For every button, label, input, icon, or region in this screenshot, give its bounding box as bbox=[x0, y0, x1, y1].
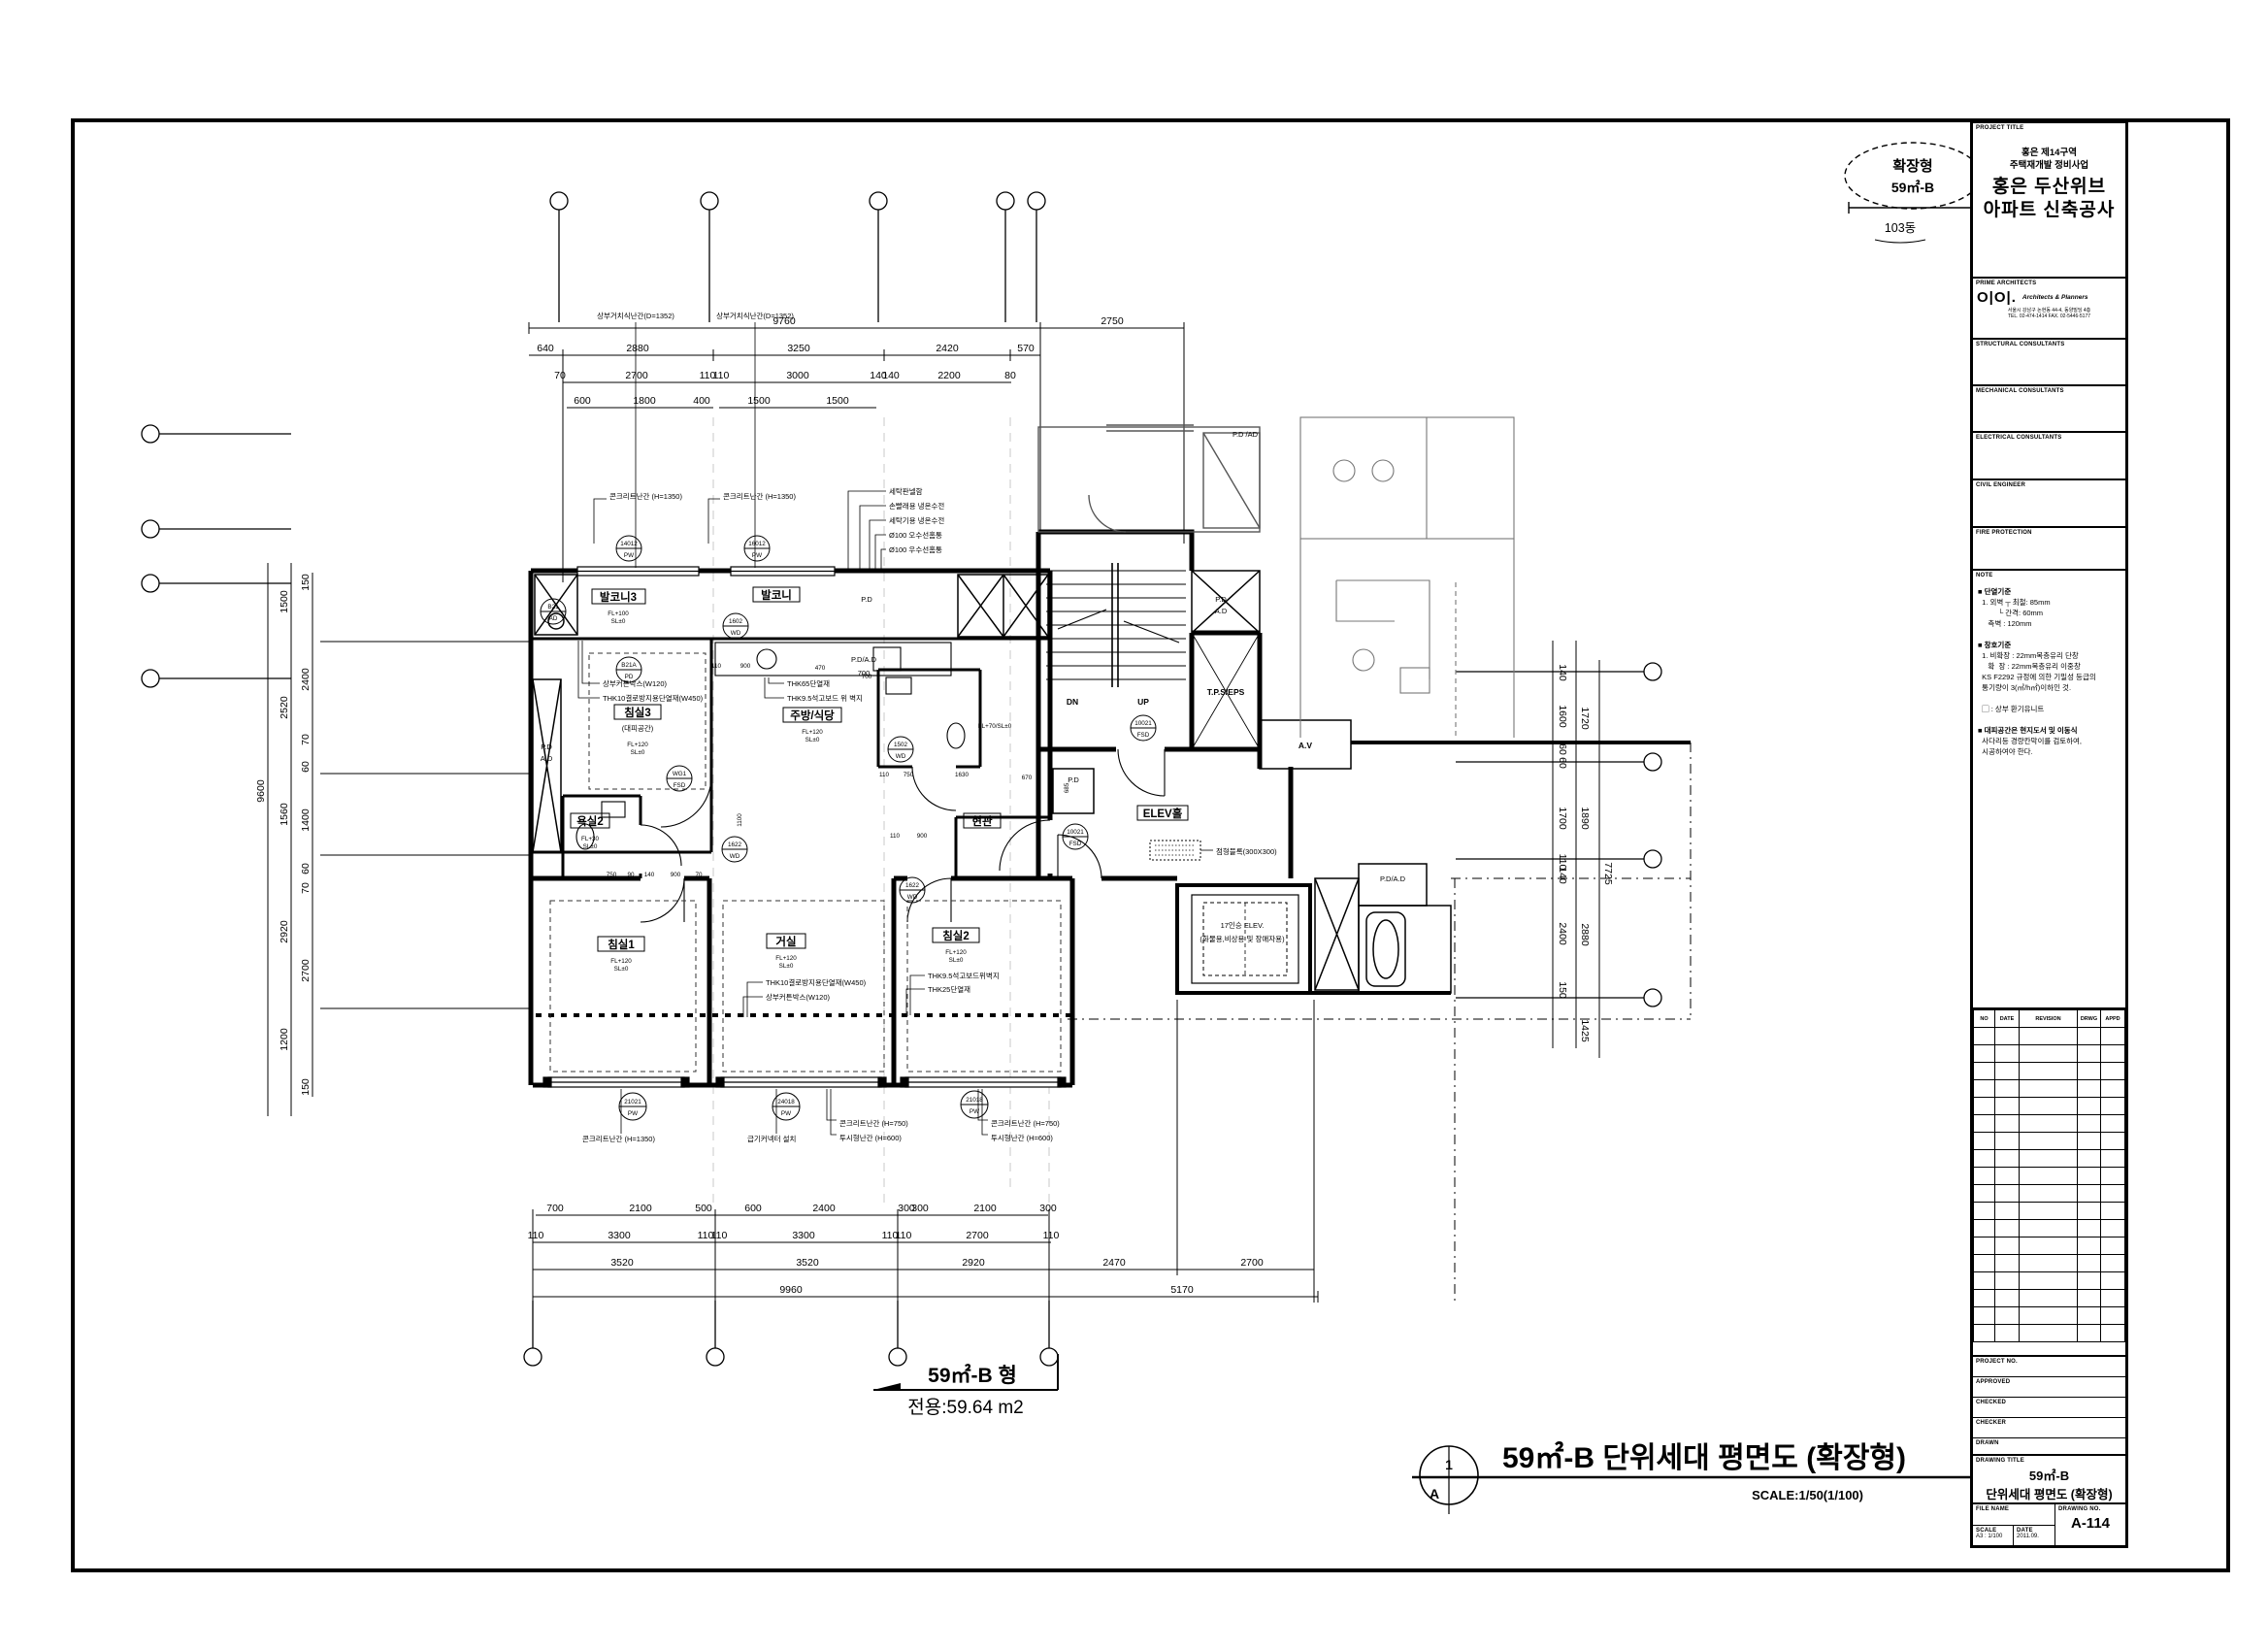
revision-cell bbox=[1974, 1290, 1995, 1307]
rev-col-no: NO bbox=[1974, 1010, 1995, 1028]
svg-text:콘크리트난간 (H=1350): 콘크리트난간 (H=1350) bbox=[723, 491, 796, 501]
svg-text:70: 70 bbox=[695, 872, 703, 878]
svg-text:90: 90 bbox=[627, 872, 635, 878]
svg-text:세탁판넬함: 세탁판넬함 bbox=[889, 486, 923, 496]
structural-label: STRUCTURAL CONSULTANTS bbox=[1973, 340, 2125, 347]
date-label: DATE bbox=[2014, 1526, 2054, 1534]
svg-text:확장형: 확장형 bbox=[1892, 157, 1932, 175]
svg-text:1400: 1400 bbox=[300, 808, 312, 832]
mechanical-section: MECHANICAL CONSULTANTS bbox=[1973, 386, 2125, 433]
svg-text:1602: 1602 bbox=[729, 618, 743, 625]
revision-cell bbox=[2078, 1028, 2101, 1045]
svg-text:2920: 2920 bbox=[962, 1257, 985, 1269]
revision-cell bbox=[2101, 1220, 2125, 1237]
svg-text:콘크리트난간 (H=1350): 콘크리트난간 (H=1350) bbox=[582, 1134, 655, 1143]
svg-text:DN: DN bbox=[1067, 697, 1078, 707]
revision-cell bbox=[2078, 1290, 2101, 1307]
svg-text:300: 300 bbox=[1039, 1203, 1057, 1214]
project-subtitle-1: 홍은 제14구역 bbox=[1973, 147, 2125, 159]
svg-text:1500: 1500 bbox=[826, 395, 849, 407]
revision-cell bbox=[1974, 1028, 1995, 1045]
svg-text:투시형난간 (H=600): 투시형난간 (H=600) bbox=[839, 1133, 902, 1142]
svg-text:THK9.5석고보드 위 벽지: THK9.5석고보드 위 벽지 bbox=[787, 693, 863, 703]
svg-text:14012: 14012 bbox=[620, 541, 638, 547]
svg-text:2100: 2100 bbox=[629, 1203, 652, 1214]
svg-text:WD: WD bbox=[907, 894, 918, 901]
note-label: NOTE bbox=[1973, 571, 2125, 578]
svg-text:2400: 2400 bbox=[300, 668, 312, 691]
grid-bubbles-left bbox=[142, 425, 291, 687]
revision-cell bbox=[1974, 1115, 1995, 1133]
electrical-section: ELECTRICAL CONSULTANTS bbox=[1973, 433, 2125, 480]
svg-text:1100: 1100 bbox=[737, 813, 743, 827]
detail-number: 1 bbox=[1445, 1457, 1453, 1472]
revision-cell bbox=[2101, 1045, 2125, 1063]
svg-text:2200: 2200 bbox=[937, 370, 961, 381]
project-name-2: 아파트 신축공사 bbox=[1973, 199, 2125, 222]
revision-cell bbox=[2078, 1045, 2101, 1063]
rev-col-date: DATE bbox=[1995, 1010, 2020, 1028]
revision-cell bbox=[2078, 1220, 2101, 1237]
revision-cell bbox=[2020, 1168, 2078, 1185]
svg-text:140: 140 bbox=[1557, 664, 1568, 681]
svg-text:700: 700 bbox=[862, 674, 872, 680]
svg-text:24018: 24018 bbox=[777, 1099, 795, 1105]
drawing-title-line1: 59㎡-B bbox=[1973, 1466, 2125, 1484]
dims-right: 140 1600 60 60 1700 110 140 2400 150 172… bbox=[1557, 664, 1614, 1042]
svg-text:상부커튼박스(W120): 상부커튼박스(W120) bbox=[603, 678, 667, 688]
revision-cell bbox=[2101, 1272, 2125, 1290]
svg-text:2880: 2880 bbox=[626, 343, 649, 354]
revision-cell bbox=[1974, 1325, 1995, 1342]
svg-text:PW: PW bbox=[970, 1108, 979, 1115]
svg-text:SL±0: SL±0 bbox=[949, 957, 964, 964]
note-line: ▢ : 상부 환기유니트 bbox=[1973, 704, 2125, 714]
revision-cell bbox=[2078, 1150, 2101, 1168]
note-line bbox=[1973, 693, 2125, 704]
svg-text:AD: AD bbox=[549, 615, 558, 622]
svg-text:600: 600 bbox=[744, 1203, 762, 1214]
svg-text:7725: 7725 bbox=[1602, 862, 1614, 885]
svg-text:110: 110 bbox=[528, 1230, 544, 1241]
note-line: 확 장 : 22mm복층유리 이중창 bbox=[1973, 661, 2125, 672]
revision-cell bbox=[2020, 1098, 2078, 1115]
svg-text:110: 110 bbox=[896, 1230, 912, 1241]
note-line: ■ 대피공간은 현지도서 및 이동식 bbox=[1973, 725, 2125, 736]
svg-text:WD: WD bbox=[730, 853, 740, 860]
svg-text:470: 470 bbox=[815, 665, 826, 672]
drawing-no-label: DRAWING NO. bbox=[2055, 1504, 2125, 1512]
svg-text:P.D: P.D bbox=[1068, 775, 1079, 784]
revision-cell bbox=[1995, 1272, 2020, 1290]
svg-text:140: 140 bbox=[882, 370, 900, 381]
svg-text:P.D: P.D bbox=[1215, 595, 1227, 604]
footer-title: 1 A 59㎡-B 단위세대 평면도 (확장형) SCALE:1/50(1/10… bbox=[1412, 1441, 1978, 1514]
svg-text:FSD: FSD bbox=[1069, 841, 1082, 847]
revision-cell bbox=[1974, 1150, 1995, 1168]
revision-cell bbox=[1974, 1098, 1995, 1115]
svg-text:콘크리트난간 (H=750): 콘크리트난간 (H=750) bbox=[839, 1118, 908, 1128]
svg-text:2700: 2700 bbox=[1240, 1257, 1264, 1269]
upper-core bbox=[1038, 425, 1260, 532]
revision-cell bbox=[2101, 1307, 2125, 1325]
svg-text:전용:59.64 m2: 전용:59.64 m2 bbox=[907, 1397, 1023, 1418]
title-block: PROJECT TITLE 홍은 제14구역 주택재개발 정비사업 홍은 두산위… bbox=[1970, 120, 2128, 1548]
svg-text:B21: B21 bbox=[547, 604, 559, 610]
revision-section: NO DATE REVISION DRWG APPD bbox=[1973, 1009, 2125, 1357]
svg-text:3520: 3520 bbox=[796, 1257, 819, 1269]
svg-text:60: 60 bbox=[1557, 743, 1568, 755]
svg-text:FL+100: FL+100 bbox=[608, 610, 629, 617]
revision-cell bbox=[1974, 1272, 1995, 1290]
revision-cell bbox=[2020, 1115, 2078, 1133]
dims-bottom: 700 2100 500 600 2400 300 300 2100 300 1… bbox=[528, 1203, 1264, 1296]
svg-text:Ø100 오수선홈통: Ø100 오수선홈통 bbox=[889, 530, 942, 540]
dims-left: 9600 1500 2520 1560 2920 1200 150 2400 7… bbox=[255, 574, 312, 1096]
svg-text:UP: UP bbox=[1137, 697, 1149, 707]
revision-cell bbox=[2101, 1237, 2125, 1255]
svg-text:150: 150 bbox=[1557, 981, 1568, 999]
revision-cell bbox=[2020, 1203, 2078, 1220]
drawing-title-label: DRAWING TITLE bbox=[1973, 1456, 2125, 1464]
area-label: 59㎡-B 형 전용:59.64 m2 bbox=[873, 1354, 1058, 1418]
svg-text:110: 110 bbox=[711, 1230, 728, 1241]
note-line: 통기량이 3(㎥/h㎡)이하인 것. bbox=[1973, 682, 2125, 693]
mechanical-label: MECHANICAL CONSULTANTS bbox=[1973, 386, 2125, 394]
revision-cell bbox=[1974, 1063, 1995, 1080]
svg-text:욕실2: 욕실2 bbox=[576, 814, 604, 828]
svg-text:1700: 1700 bbox=[1557, 807, 1568, 830]
svg-text:WD: WD bbox=[731, 630, 741, 637]
dim-lines bbox=[268, 322, 1599, 1303]
revision-cell bbox=[1974, 1133, 1995, 1150]
svg-text:PW: PW bbox=[628, 1110, 638, 1117]
svg-text:P.D/A.D: P.D/A.D bbox=[851, 655, 877, 664]
revision-cell bbox=[2078, 1272, 2101, 1290]
revision-table: NO DATE REVISION DRWG APPD bbox=[1973, 1009, 2125, 1342]
scale-label: SCALE bbox=[1973, 1526, 2013, 1534]
svg-text:Ø100 우수선홈통: Ø100 우수선홈통 bbox=[889, 544, 942, 554]
svg-text:THK9.5석고보드위벽지: THK9.5석고보드위벽지 bbox=[928, 971, 1000, 980]
revision-cell bbox=[1995, 1150, 2020, 1168]
scale-value: A3 : 1/100 bbox=[1973, 1534, 2013, 1539]
rev-col-drwg: DRWG bbox=[2078, 1010, 2101, 1028]
revision-cell bbox=[1974, 1045, 1995, 1063]
svg-text:2700: 2700 bbox=[300, 959, 312, 982]
svg-text:발코니: 발코니 bbox=[761, 588, 792, 602]
revision-cell bbox=[1995, 1063, 2020, 1080]
svg-text:FL+120: FL+120 bbox=[627, 742, 648, 748]
svg-text:FL+120: FL+120 bbox=[775, 955, 797, 962]
revision-cell bbox=[1974, 1220, 1995, 1237]
revision-cell bbox=[1995, 1307, 2020, 1325]
svg-text:WG1: WG1 bbox=[673, 771, 687, 777]
revision-cell bbox=[2101, 1168, 2125, 1185]
svg-text:THK10결로방지용단열재(W450): THK10결로방지용단열재(W450) bbox=[603, 693, 704, 703]
svg-text:150: 150 bbox=[300, 574, 312, 591]
revision-cell bbox=[2101, 1098, 2125, 1115]
svg-text:2700: 2700 bbox=[966, 1230, 989, 1241]
svg-text:16012: 16012 bbox=[748, 541, 766, 547]
svg-text:110: 110 bbox=[711, 663, 722, 670]
svg-text:2520: 2520 bbox=[279, 696, 290, 719]
svg-text:FSD: FSD bbox=[1137, 732, 1150, 739]
svg-text:2400: 2400 bbox=[1557, 922, 1568, 945]
dims-top: 9760 2750 640 2880 3250 2420 570 70 2700… bbox=[537, 315, 1124, 407]
revision-cell bbox=[2101, 1115, 2125, 1133]
revision-cell bbox=[1995, 1220, 2020, 1237]
revision-cell bbox=[2020, 1220, 2078, 1237]
corridor bbox=[1068, 742, 1691, 1305]
svg-text:주방/식당: 주방/식당 bbox=[790, 709, 835, 722]
drawing-title-section: DRAWING TITLE 59㎡-B 단위세대 평면도 (확장형) bbox=[1973, 1456, 2125, 1504]
drawing-number: A-114 bbox=[2055, 1515, 2125, 1532]
note-body: ■ 단열기준 1. 외벽 ┬ 최철: 85mm └ 간격: 60mm 측벽 : … bbox=[1973, 586, 2125, 757]
svg-text:손빨래용 냉온수전: 손빨래용 냉온수전 bbox=[889, 501, 944, 511]
project-subtitle-2: 주택재개발 정비사업 bbox=[1973, 159, 2125, 172]
svg-text:1200: 1200 bbox=[279, 1028, 290, 1051]
revision-cell bbox=[1974, 1255, 1995, 1272]
svg-text:침실2: 침실2 bbox=[942, 929, 970, 942]
svg-text:300: 300 bbox=[911, 1203, 929, 1214]
revision-cell bbox=[2078, 1080, 2101, 1098]
approved-label: APPROVED bbox=[1973, 1377, 2125, 1385]
revision-cell bbox=[2078, 1133, 2101, 1150]
file-name-label: FILE NAME bbox=[1973, 1504, 2054, 1512]
svg-text:WD: WD bbox=[896, 753, 906, 760]
revision-cell bbox=[2101, 1028, 2125, 1045]
revision-cell bbox=[1974, 1185, 1995, 1203]
svg-text:FL+70/SL±0: FL+70/SL±0 bbox=[978, 723, 1012, 730]
svg-text:T.P.S/EPS: T.P.S/EPS bbox=[1207, 687, 1245, 697]
svg-text:A.D: A.D bbox=[1215, 607, 1228, 615]
meta-section: PROJECT NO. APPROVED CHECKED CHECKER DRA… bbox=[1973, 1357, 2125, 1456]
revision-cell bbox=[2101, 1325, 2125, 1342]
civil-section: CIVIL ENGINEER bbox=[1973, 480, 2125, 528]
architect-phone: TEL. 02-474-1414 FAX. 02-5446-5177 bbox=[1973, 313, 2125, 319]
svg-text:110: 110 bbox=[1043, 1230, 1060, 1241]
revision-cell bbox=[1995, 1237, 2020, 1255]
svg-text:21021: 21021 bbox=[624, 1099, 641, 1105]
svg-text:SL±0: SL±0 bbox=[611, 618, 626, 625]
svg-text:1622: 1622 bbox=[728, 841, 742, 848]
architect-logo: O|O|. bbox=[1977, 289, 2017, 306]
svg-text:10021: 10021 bbox=[1067, 829, 1084, 836]
revision-cell bbox=[2078, 1255, 2101, 1272]
svg-text:P.D: P.D bbox=[861, 595, 872, 604]
tags: 14012PW 16012PW B21AD 1602WD B21APD 1502… bbox=[541, 536, 1156, 1120]
svg-text:750: 750 bbox=[904, 772, 914, 778]
svg-text:3300: 3300 bbox=[792, 1230, 815, 1241]
svg-text:70: 70 bbox=[554, 370, 566, 381]
revision-cell bbox=[2020, 1028, 2078, 1045]
svg-text:THK25단열재: THK25단열재 bbox=[928, 984, 970, 994]
svg-text:1800: 1800 bbox=[633, 395, 656, 407]
unit-partitions bbox=[531, 639, 1050, 878]
rev-col-revision: REVISION bbox=[2020, 1010, 2078, 1028]
electrical-label: ELECTRICAL CONSULTANTS bbox=[1973, 433, 2125, 441]
svg-text:FL+30: FL+30 bbox=[581, 836, 600, 842]
checked-label: CHECKED bbox=[1973, 1398, 2125, 1405]
svg-text:FL+120: FL+120 bbox=[610, 958, 632, 965]
svg-text:5170: 5170 bbox=[1170, 1284, 1194, 1296]
rev-col-appd: APPD bbox=[2101, 1010, 2125, 1028]
svg-text:1560: 1560 bbox=[279, 803, 290, 826]
revision-cell bbox=[1995, 1045, 2020, 1063]
revision-cell bbox=[2101, 1203, 2125, 1220]
revision-cell bbox=[2020, 1045, 2078, 1063]
revision-cell bbox=[2101, 1255, 2125, 1272]
room-label-boxes bbox=[571, 587, 1188, 951]
note-line: KS F2292 규정에 의한 기밀성 등급의 bbox=[1973, 672, 2125, 682]
revision-cell bbox=[2020, 1150, 2078, 1168]
svg-text:투시형난간 (H=600): 투시형난간 (H=600) bbox=[991, 1133, 1053, 1142]
svg-text:A.D: A.D bbox=[541, 754, 553, 763]
revision-cell bbox=[2078, 1168, 2101, 1185]
revision-cell bbox=[1995, 1115, 2020, 1133]
svg-text:PW: PW bbox=[752, 552, 762, 559]
revision-cell bbox=[1974, 1080, 1995, 1098]
revision-cell bbox=[2078, 1325, 2101, 1342]
revision-cell bbox=[2020, 1237, 2078, 1255]
svg-text:21018: 21018 bbox=[966, 1097, 983, 1104]
date-value: 2011.09. bbox=[2014, 1534, 2054, 1539]
note-line: └ 간격: 60mm bbox=[1973, 608, 2125, 618]
svg-text:A.V: A.V bbox=[1298, 741, 1313, 750]
svg-text:FSD: FSD bbox=[674, 782, 686, 789]
revision-cell bbox=[1974, 1307, 1995, 1325]
note-line: 1. 외벽 ┬ 최철: 85mm bbox=[1973, 597, 2125, 608]
revision-cell bbox=[2020, 1080, 2078, 1098]
revision-cell bbox=[2078, 1098, 2101, 1115]
svg-text:SL±0: SL±0 bbox=[779, 963, 794, 970]
svg-text:900: 900 bbox=[740, 663, 751, 670]
svg-text:PW: PW bbox=[781, 1110, 791, 1117]
svg-text:콘크리트난간 (H=750): 콘크리트난간 (H=750) bbox=[991, 1118, 1060, 1128]
note-line: 측벽 : 120mm bbox=[1973, 618, 2125, 629]
svg-text:1600: 1600 bbox=[1557, 705, 1568, 728]
leader-notes: 상부거치식난간(D=1352) 상부거치식난간(D=1352) 콘크리트난간 (… bbox=[582, 311, 1277, 1143]
svg-text:침실1: 침실1 bbox=[608, 938, 635, 951]
structural-section: STRUCTURAL CONSULTANTS bbox=[1973, 340, 2125, 386]
svg-text:3000: 3000 bbox=[786, 370, 809, 381]
svg-text:3300: 3300 bbox=[608, 1230, 631, 1241]
svg-text:640: 640 bbox=[537, 343, 554, 354]
svg-text:103동: 103동 bbox=[1885, 221, 1916, 235]
revision-cell bbox=[2020, 1255, 2078, 1272]
svg-text:600: 600 bbox=[574, 395, 591, 407]
project-no-label: PROJECT NO. bbox=[1973, 1357, 2125, 1365]
revision-cell bbox=[1995, 1185, 2020, 1203]
revision-cell bbox=[2101, 1133, 2125, 1150]
filename-section: FILE NAME SCALE A3 : 1/100 DATE 2011.09.… bbox=[1973, 1504, 2125, 1545]
note-line bbox=[1973, 629, 2125, 640]
svg-text:상부거치식난간(D=1352): 상부거치식난간(D=1352) bbox=[716, 311, 794, 320]
revision-cell bbox=[2020, 1185, 2078, 1203]
svg-text:점형블록(300X300): 점형블록(300X300) bbox=[1216, 846, 1277, 856]
level-marks: FL+100 SL±0 FL+120 SL±0 FL+120 SL±0 FL+3… bbox=[581, 610, 1012, 973]
svg-text:700: 700 bbox=[546, 1203, 564, 1214]
svg-text:59㎡-B 형: 59㎡-B 형 bbox=[928, 1364, 1017, 1387]
svg-text:70: 70 bbox=[300, 882, 312, 894]
revision-cell bbox=[1995, 1133, 2020, 1150]
revision-cell bbox=[2101, 1080, 2125, 1098]
svg-text:P.D/A.D: P.D/A.D bbox=[1380, 874, 1406, 883]
revision-cell bbox=[2078, 1185, 2101, 1203]
svg-text:THK10결로방지용단열재(W450): THK10결로방지용단열재(W450) bbox=[766, 977, 867, 987]
svg-text:FL+120: FL+120 bbox=[802, 729, 823, 736]
svg-text:110: 110 bbox=[890, 833, 901, 840]
door-arcs bbox=[641, 767, 1050, 922]
svg-text:급기커넥터 설치: 급기커넥터 설치 bbox=[747, 1134, 796, 1143]
svg-text:1630: 1630 bbox=[955, 772, 970, 778]
sheet-border bbox=[73, 120, 2228, 1570]
svg-text:(대피공간): (대피공간) bbox=[622, 723, 654, 733]
revision-cell bbox=[2101, 1290, 2125, 1307]
svg-text:900: 900 bbox=[917, 833, 928, 840]
revision-cell bbox=[2101, 1185, 2125, 1203]
svg-text:80: 80 bbox=[1004, 370, 1016, 381]
revision-cell bbox=[1974, 1168, 1995, 1185]
svg-text:750: 750 bbox=[607, 872, 617, 878]
svg-text:2100: 2100 bbox=[973, 1203, 997, 1214]
svg-text:1500: 1500 bbox=[747, 395, 771, 407]
svg-text:2700: 2700 bbox=[625, 370, 648, 381]
svg-text:3520: 3520 bbox=[610, 1257, 634, 1269]
svg-text:60: 60 bbox=[300, 863, 312, 874]
svg-text:SL±0: SL±0 bbox=[583, 843, 598, 850]
revision-cell bbox=[1995, 1168, 2020, 1185]
drawn-label: DRAWN bbox=[1973, 1438, 2125, 1446]
svg-text:1502: 1502 bbox=[894, 742, 908, 748]
svg-text:2880: 2880 bbox=[1579, 923, 1591, 946]
svg-text:콘크리트난간 (H=1350): 콘크리트난간 (H=1350) bbox=[609, 491, 682, 501]
civil-label: CIVIL ENGINEER bbox=[1973, 480, 2125, 488]
architect-label: PRIME ARCHITECTS bbox=[1973, 279, 2125, 286]
svg-text:ELEV홀: ELEV홀 bbox=[1143, 807, 1183, 820]
revision-cell bbox=[2078, 1115, 2101, 1133]
note-line: 사다리등 경량칸막이를 검토하여, bbox=[1973, 736, 2125, 746]
fire-section: FIRE PROTECTION bbox=[1973, 528, 2125, 571]
svg-text:2920: 2920 bbox=[279, 920, 290, 943]
svg-text:THK65단열재: THK65단열재 bbox=[787, 678, 830, 688]
revision-cell bbox=[1995, 1290, 2020, 1307]
revision-cell bbox=[2078, 1203, 2101, 1220]
revision-cell bbox=[1974, 1203, 1995, 1220]
svg-text:거실: 거실 bbox=[775, 935, 796, 948]
note-line bbox=[1973, 714, 2125, 725]
sheet-title: 59㎡-B 단위세대 평면도 (확장형) bbox=[1502, 1441, 1906, 1474]
revision-cell bbox=[2020, 1063, 2078, 1080]
revision-cell bbox=[2101, 1063, 2125, 1080]
svg-text:2400: 2400 bbox=[812, 1203, 836, 1214]
revision-cell bbox=[2020, 1325, 2078, 1342]
svg-text:1622: 1622 bbox=[905, 882, 920, 889]
svg-text:2750: 2750 bbox=[1101, 315, 1124, 327]
svg-text:400: 400 bbox=[693, 395, 710, 407]
architect-firm: Architects & Planners bbox=[2022, 294, 2088, 301]
svg-text:P.D: P.D bbox=[541, 742, 552, 751]
floor-plan-drawing: 9760 2750 640 2880 3250 2420 570 70 2700… bbox=[0, 0, 2268, 1650]
svg-text:현관: 현관 bbox=[971, 814, 993, 828]
svg-text:PD: PD bbox=[625, 674, 634, 680]
note-line: 시공하여야 한다. bbox=[1973, 746, 2125, 757]
svg-text:PW: PW bbox=[624, 552, 634, 559]
svg-text:10021: 10021 bbox=[1134, 720, 1152, 727]
note-line: 1. 비확장 : 22mm복층유리 단창 bbox=[1973, 650, 2125, 661]
revision-cell bbox=[1995, 1255, 2020, 1272]
revision-cell bbox=[2020, 1133, 2078, 1150]
